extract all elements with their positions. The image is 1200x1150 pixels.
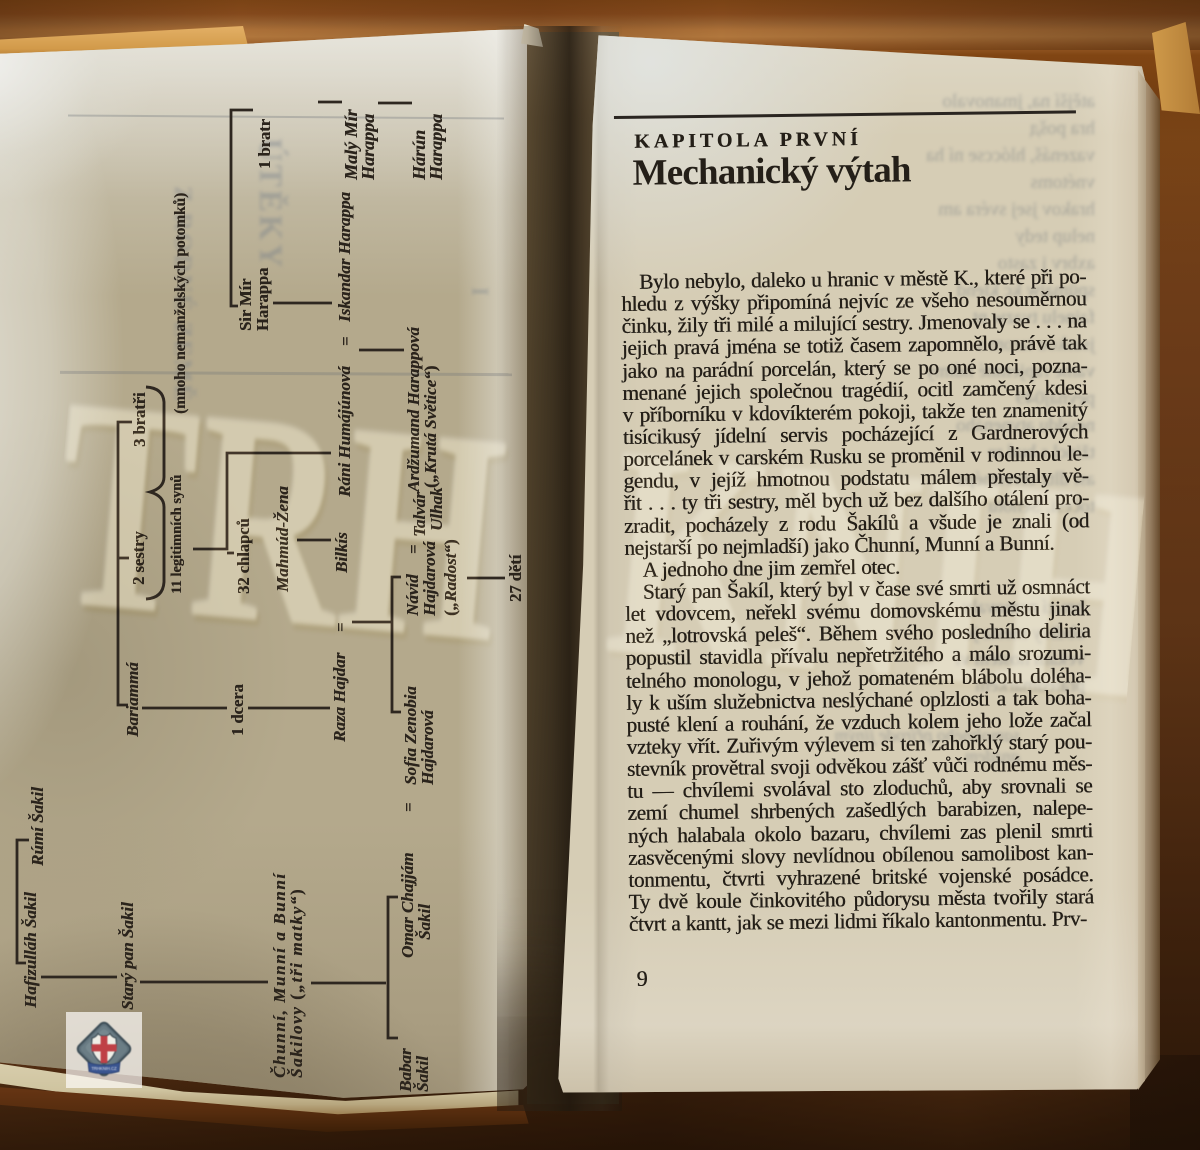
svg-text:TRHKNIH.CZ: TRHKNIH.CZ: [91, 1066, 117, 1071]
